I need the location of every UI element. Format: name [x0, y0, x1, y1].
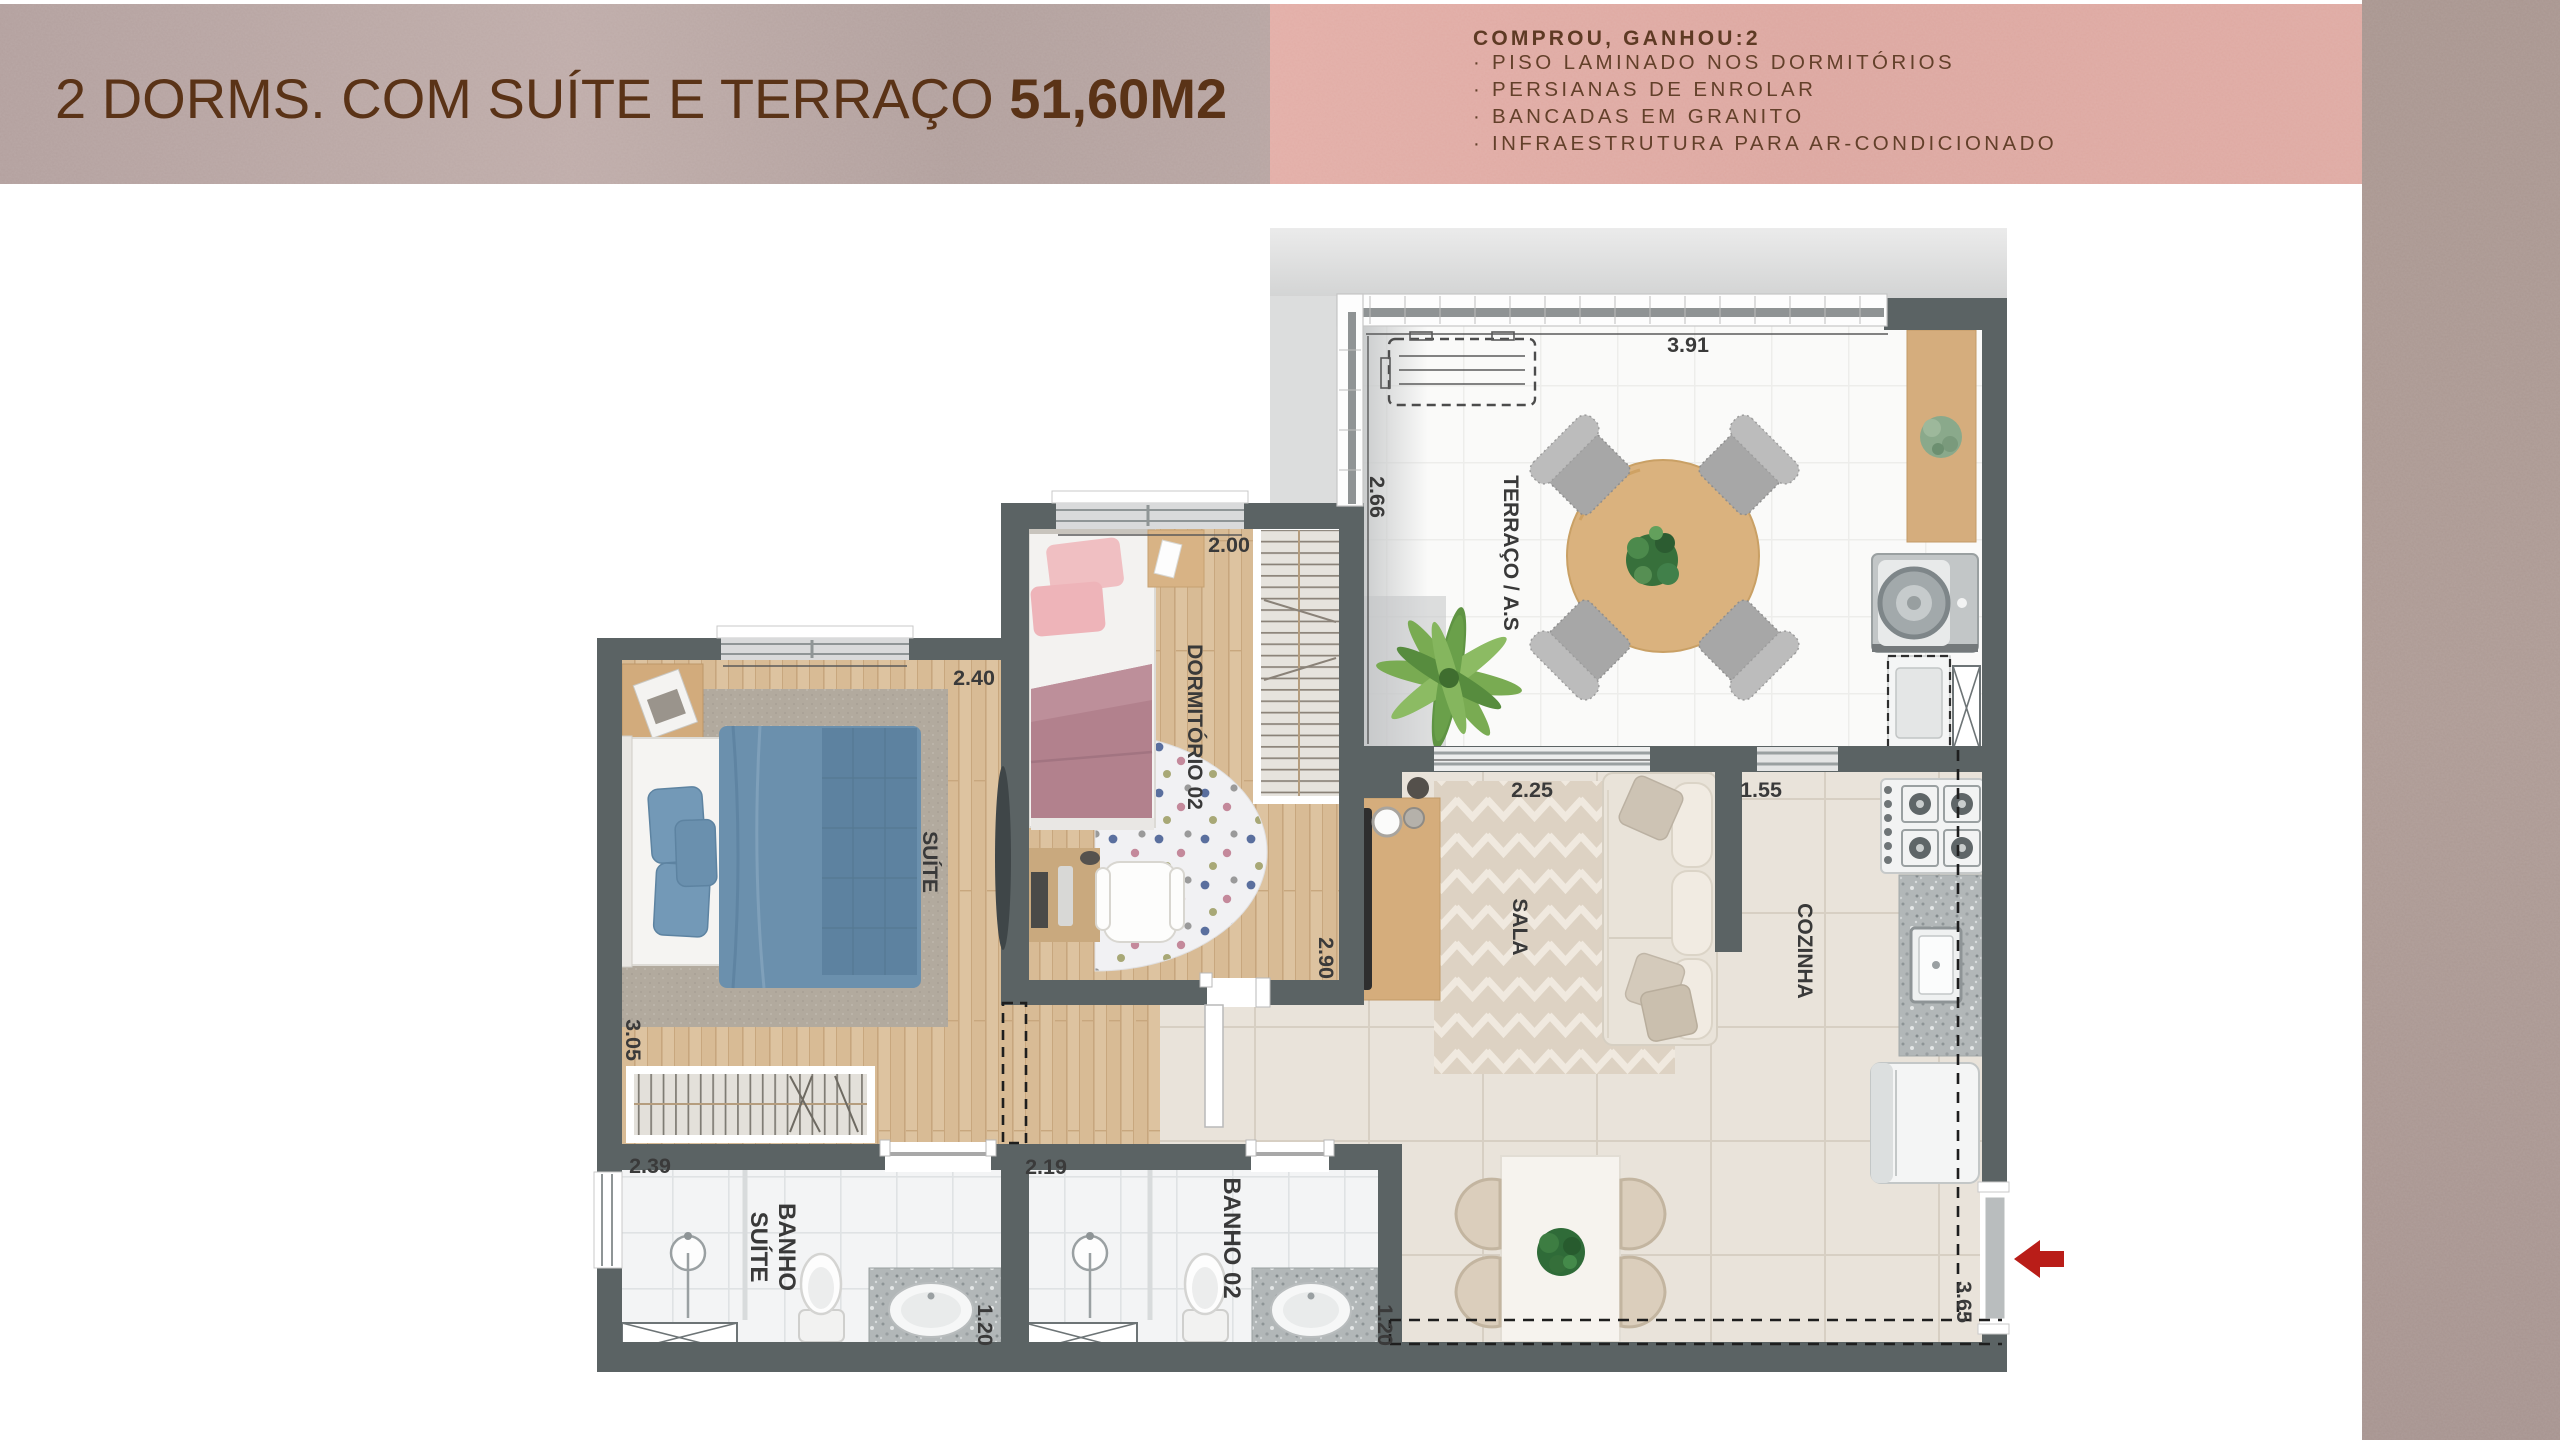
svg-text:·: ·: [1473, 105, 1483, 128]
svg-text:TERRAÇO / A.S: TERRAÇO / A.S: [1499, 475, 1522, 631]
svg-text:2.00: 2.00: [1208, 533, 1250, 557]
svg-text:2.19: 2.19: [1025, 1155, 1067, 1179]
svg-text:COZINHA: COZINHA: [1793, 903, 1816, 999]
svg-text:DORMITÓRIO 02: DORMITÓRIO 02: [1183, 644, 1207, 810]
svg-text:·: ·: [1473, 51, 1483, 74]
svg-text:2.40: 2.40: [953, 666, 995, 690]
svg-text:INFRAESTRUTURA PARA AR-CONDICI: INFRAESTRUTURA PARA AR-CONDICIONADO: [1492, 132, 2057, 155]
svg-text:1.20: 1.20: [973, 1304, 997, 1346]
svg-text:PERSIANAS DE ENROLAR: PERSIANAS DE ENROLAR: [1492, 78, 1816, 101]
svg-text:1.55: 1.55: [1740, 778, 1782, 802]
svg-text:2.90: 2.90: [1314, 937, 1338, 979]
svg-text:2.25: 2.25: [1511, 778, 1553, 802]
svg-text:2.39: 2.39: [629, 1154, 671, 1178]
svg-text:3.91: 3.91: [1667, 333, 1709, 357]
svg-text:PISO LAMINADO NOS DORMITÓRIOS: PISO LAMINADO NOS DORMITÓRIOS: [1492, 51, 1955, 74]
svg-text:3.05: 3.05: [621, 1019, 645, 1061]
svg-text:COMPROU, GANHOU:2: COMPROU, GANHOU:2: [1473, 27, 1761, 50]
svg-text:·: ·: [1473, 78, 1483, 101]
svg-text:BANCADAS EM GRANITO: BANCADAS EM GRANITO: [1492, 105, 1805, 128]
svg-text:·: ·: [1473, 132, 1483, 155]
svg-text:2 DORMS. COM SUÍTE E TERRAÇO 5: 2 DORMS. COM SUÍTE E TERRAÇO 51,60M2: [55, 67, 1227, 130]
svg-text:BANHOSUÍTE: BANHOSUÍTE: [745, 1203, 800, 1291]
svg-text:BANHO 02: BANHO 02: [1218, 1177, 1245, 1298]
svg-text:3.65: 3.65: [1952, 1281, 1976, 1323]
svg-text:SUÍTE: SUÍTE: [918, 831, 941, 893]
svg-text:2.66: 2.66: [1365, 476, 1389, 518]
svg-text:1.20: 1.20: [1373, 1304, 1397, 1346]
svg-text:SALA: SALA: [1508, 898, 1531, 955]
